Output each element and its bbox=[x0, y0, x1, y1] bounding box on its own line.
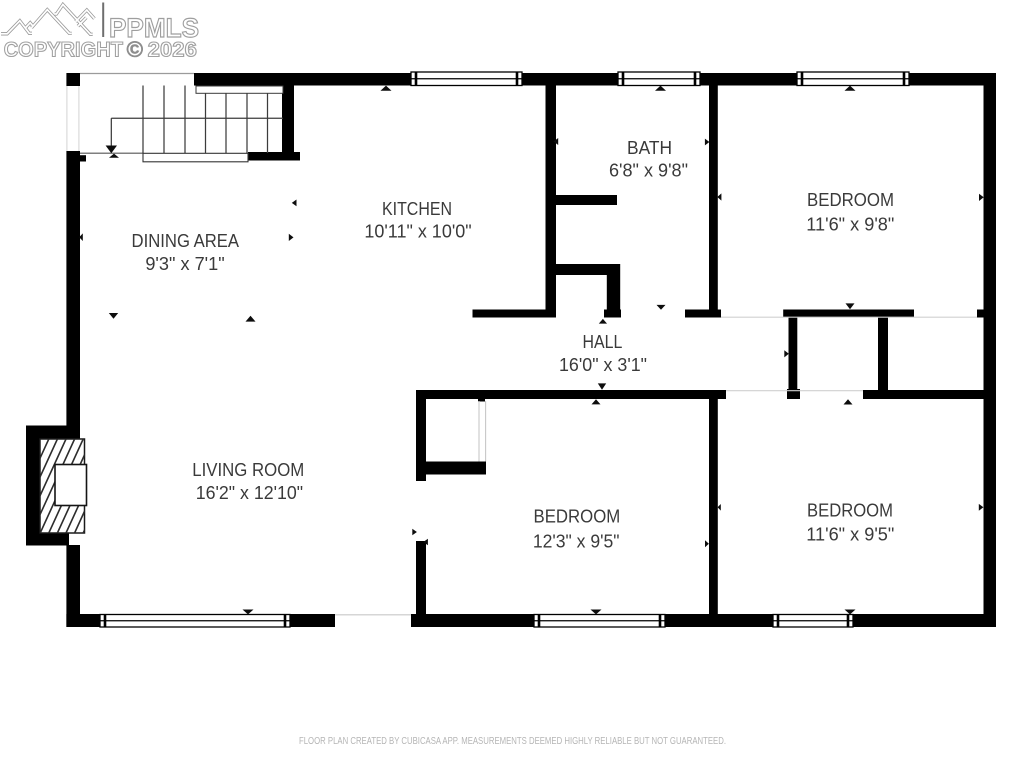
svg-text:KITCHEN: KITCHEN bbox=[382, 199, 452, 219]
svg-text:DINING AREA: DINING AREA bbox=[132, 231, 240, 251]
svg-text:11'6" x 9'8": 11'6" x 9'8" bbox=[806, 214, 894, 234]
svg-text:BEDROOM: BEDROOM bbox=[807, 190, 894, 210]
svg-text:©: © bbox=[127, 37, 144, 62]
svg-text:9'3" x 7'1": 9'3" x 7'1" bbox=[145, 254, 224, 274]
svg-text:LIVING ROOM: LIVING ROOM bbox=[192, 460, 304, 480]
svg-text:COPYRIGHT: COPYRIGHT bbox=[4, 39, 123, 62]
svg-text:10'11" x 10'0": 10'11" x 10'0" bbox=[364, 222, 471, 242]
svg-text:2026: 2026 bbox=[148, 39, 197, 62]
svg-text:12'3" x 9'5": 12'3" x 9'5" bbox=[533, 532, 620, 552]
svg-text:16'0" x 3'1": 16'0" x 3'1" bbox=[559, 355, 647, 375]
svg-text:11'6" x 9'5": 11'6" x 9'5" bbox=[806, 524, 894, 544]
svg-text:BATH: BATH bbox=[627, 138, 672, 158]
svg-text:6'8" x 9'8": 6'8" x 9'8" bbox=[609, 161, 688, 181]
svg-text:FLOOR PLAN CREATED BY CUBICASA: FLOOR PLAN CREATED BY CUBICASA APP. MEAS… bbox=[299, 735, 726, 747]
svg-text:BEDROOM: BEDROOM bbox=[807, 501, 893, 521]
svg-text:16'2" x 12'10": 16'2" x 12'10" bbox=[196, 483, 303, 503]
svg-text:HALL: HALL bbox=[583, 332, 623, 352]
svg-text:BEDROOM: BEDROOM bbox=[534, 506, 621, 526]
